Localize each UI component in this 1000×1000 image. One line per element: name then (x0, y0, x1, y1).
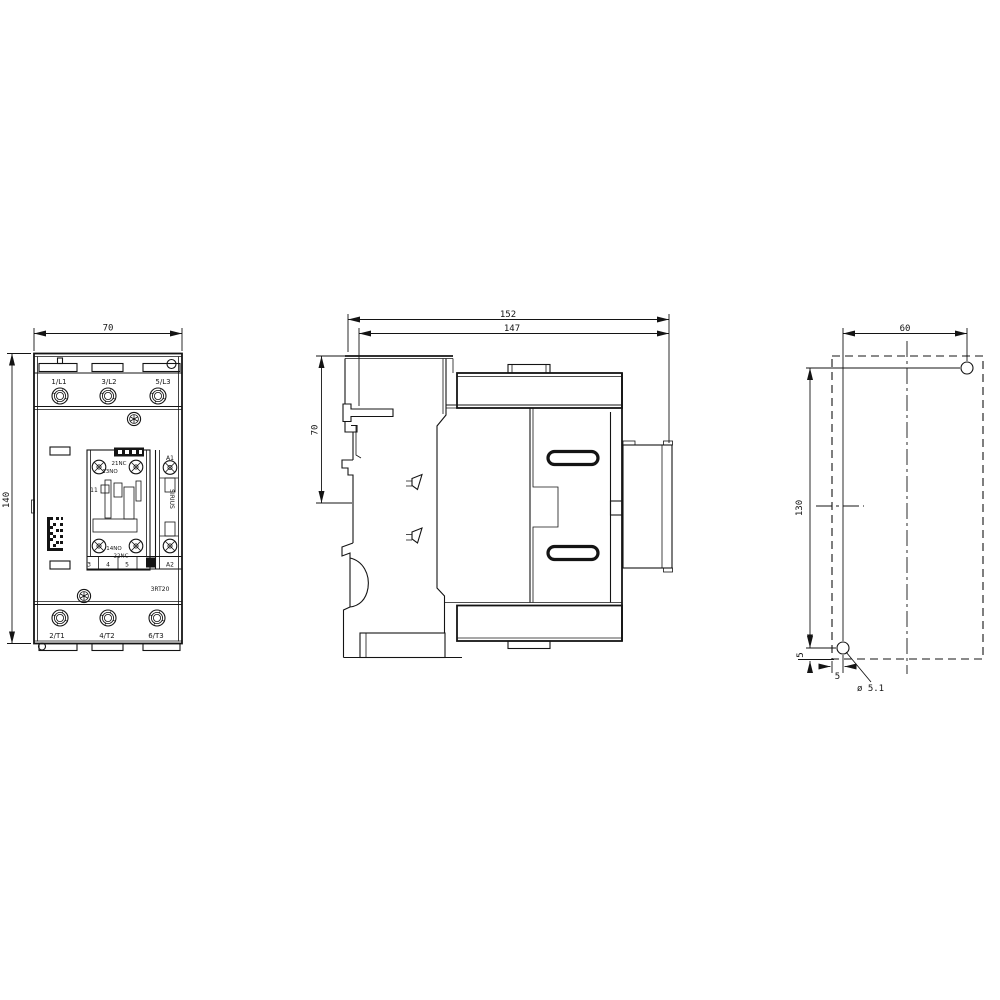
terminal-screw-icon (149, 610, 165, 626)
terminal-label-5L3: 5/L3 (155, 378, 170, 386)
din-rail-recess (342, 460, 353, 543)
terminal-label-4T2: 4/T2 (99, 632, 115, 640)
dim-edge-offset-x-label: 5 (835, 672, 840, 682)
coil-tab (165, 522, 175, 536)
torx-screw-icon (77, 589, 90, 602)
hole-diameter-label: ø 5.1 (857, 684, 884, 694)
mount-funnel-mark (406, 475, 422, 490)
vent-slot (548, 547, 598, 560)
vent-slot (548, 452, 598, 465)
coil-screw-icon (163, 461, 177, 475)
mounting-hole-bottom (837, 642, 849, 654)
row-terminal-3: 3 (87, 562, 91, 569)
dim-side-rail-label: 70 (311, 425, 321, 436)
housing-top-tab (508, 365, 550, 374)
housing-bottom-tab (508, 641, 550, 649)
front-top-tabs (39, 358, 180, 372)
dim-front-width-label: 70 (103, 324, 114, 334)
row-dark-cell (146, 558, 155, 568)
aux-mechanism-detail (93, 480, 141, 532)
terminal-label-3L2: 3/L2 (101, 378, 116, 386)
mounting-hole-top (961, 362, 973, 374)
terminal-screw-icon (52, 388, 68, 404)
face-notch (611, 501, 623, 515)
dimension-hole-spacing-y: 130 (795, 368, 960, 648)
row-terminal-a2: A2 (166, 562, 174, 569)
rear-section-face (437, 359, 446, 634)
aux-screw-icon (129, 460, 143, 474)
front-housing (445, 365, 622, 649)
terminal-screw-icon (150, 388, 166, 404)
technical-drawing-canvas: 1/L1 3/L2 5/L3 (0, 0, 1000, 1000)
mount-funnel-mark (406, 528, 422, 543)
dim-hole-spacing-y-label: 130 (795, 500, 805, 516)
row-terminal-5: 5 (125, 562, 129, 569)
housing-top-block (457, 373, 622, 408)
dim-side-mount-label: 147 (504, 324, 520, 334)
terminal-screw-icon (52, 610, 68, 626)
dimension-front-height: 140 (2, 354, 31, 644)
coil-terminal-column: A1 SIRIUS (156, 450, 179, 569)
dimension-drawing: 1/L1 3/L2 5/L3 (0, 0, 1000, 1000)
side-view: 152 147 70 (311, 310, 673, 658)
hole-diameter-callout: ø 5.1 (846, 652, 884, 694)
marker-window (50, 447, 70, 455)
rear-din-section (342, 356, 462, 658)
dimension-hole-spacing-x: 60 (843, 324, 967, 641)
dim-front-height-label: 140 (2, 492, 12, 508)
marker-window (50, 561, 70, 569)
device-outline-dashed (832, 356, 983, 659)
din-clip-top-hook (345, 422, 357, 433)
datamatrix-code-icon (47, 517, 63, 551)
product-type-label: 3RT20 (151, 586, 170, 593)
aux-screw-icon (92, 539, 106, 553)
aux-screw-icon (129, 539, 143, 553)
terminal-screw-icon (100, 388, 116, 404)
terminal-label-2T1: 2/T1 (49, 632, 65, 640)
dimension-front-width: 70 (34, 324, 182, 352)
terminal-cover (623, 441, 673, 572)
aux-label-13no: 13NO (102, 469, 118, 475)
din-clip-slider (343, 404, 393, 422)
dim-side-total-label: 152 (500, 310, 516, 320)
terminal-screw-icon (100, 610, 116, 626)
dim-hole-spacing-x-label: 60 (900, 324, 911, 334)
din-clip-spring-barb (342, 543, 353, 558)
front-bottom-tabs (34, 641, 182, 651)
terminal-label-1L1: 1/L1 (51, 378, 66, 386)
dim-edge-offset-y-label: 5 (796, 652, 806, 657)
aux-label-11: 11 (90, 487, 98, 494)
dimension-edge-offset-y: 5 (796, 634, 834, 673)
coil-screw-icon (163, 539, 177, 553)
torx-screw-icon (127, 412, 140, 425)
aux-contact-block: 21NC 13NO 11 14NO 22NC 3 4 5 (87, 448, 182, 571)
mounting-drill-plan: 60 130 5 5 ø 5.1 (795, 324, 983, 694)
aux-label-21nc: 21NC (112, 461, 127, 467)
din-clip-spring-leaf (350, 558, 368, 607)
row-terminal-4: 4 (106, 562, 110, 569)
brand-label: SIRIUS (168, 489, 175, 509)
housing-bottom-block (457, 606, 622, 642)
aux-label-14no: 14NO (106, 546, 122, 552)
rear-foot (360, 633, 445, 658)
dimension-side-rail-height: 70 (311, 356, 353, 503)
front-view: 1/L1 3/L2 5/L3 (2, 324, 182, 651)
terminal-label-6T3: 6/T3 (148, 632, 164, 640)
